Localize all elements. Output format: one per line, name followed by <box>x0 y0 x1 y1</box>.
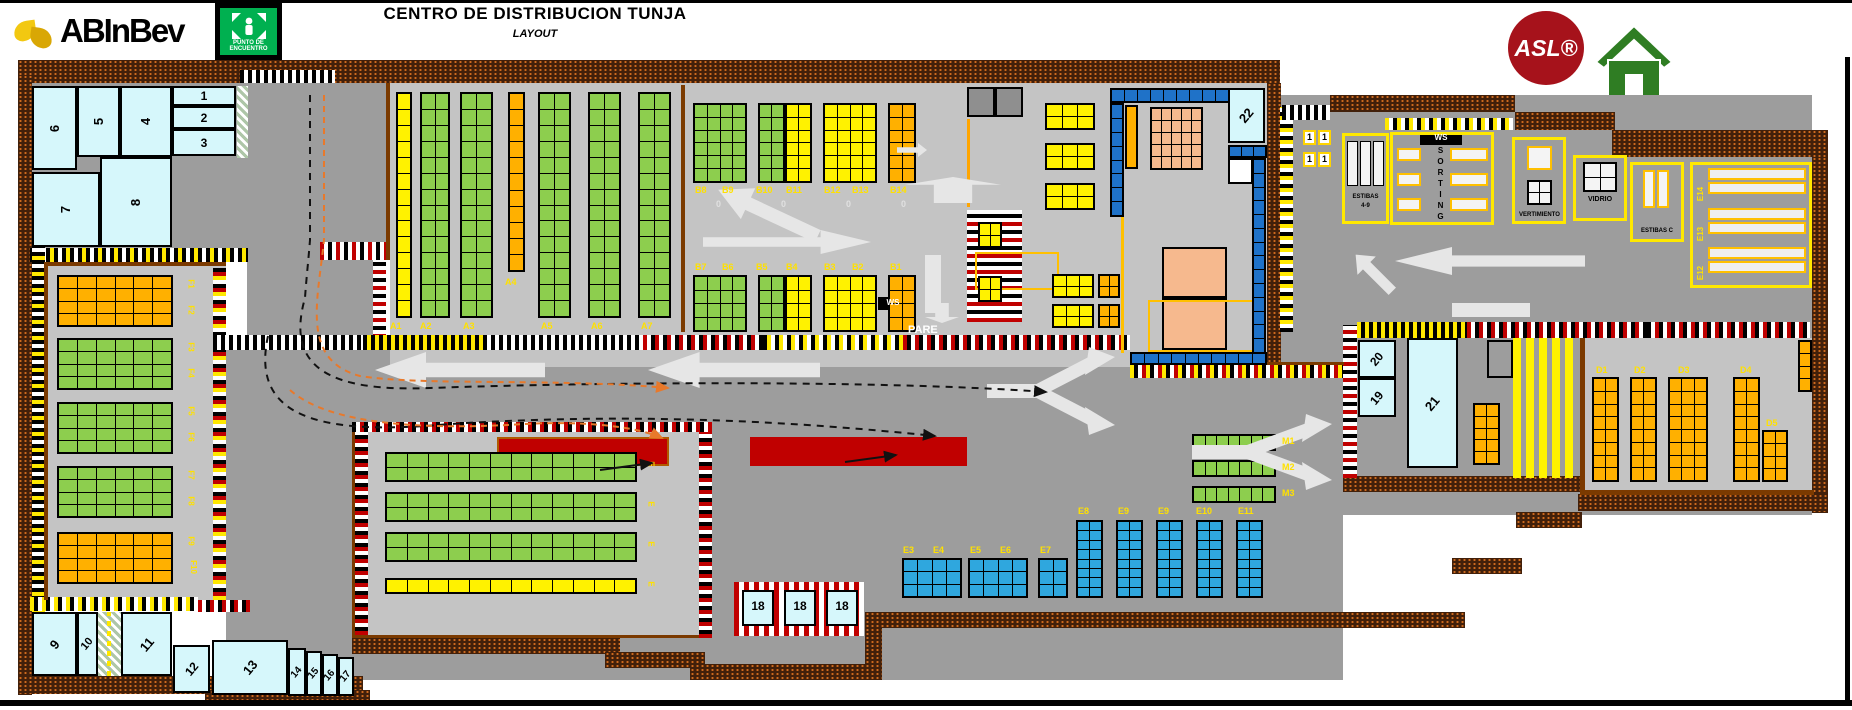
label-1: 1 <box>1318 133 1331 142</box>
conveyor-left-col <box>1110 103 1124 217</box>
label-0: 0 <box>901 200 906 209</box>
picking-strip-4 <box>385 578 637 594</box>
label-E12: E12 <box>1697 266 1705 280</box>
label-F9: F9 <box>187 536 195 545</box>
fzone-top-wall <box>44 262 226 266</box>
room-9: 9 <box>32 612 77 676</box>
rack-A2 <box>420 92 450 318</box>
orange-outline-1 <box>1148 300 1254 352</box>
conveyor-right-col <box>1252 158 1266 354</box>
sorting-slot-r3 <box>1450 198 1488 211</box>
room-3: 3 <box>172 129 236 156</box>
label-E7: E7 <box>1040 546 1051 555</box>
yellow-bar-2 <box>1526 338 1534 478</box>
label-B8: B8 <box>695 186 707 195</box>
rack-E11 <box>1236 520 1263 598</box>
room-1: 1 <box>172 86 236 106</box>
hatch-border <box>1612 130 1828 157</box>
crosswalk <box>1385 118 1513 130</box>
label-4-9: 4-9 <box>1342 203 1389 209</box>
rack-E9b <box>1156 520 1183 598</box>
bottom-border-line <box>0 700 1852 706</box>
crosswalk <box>1130 365 1343 378</box>
label-F1: F1 <box>187 279 195 288</box>
room-11: 11 <box>121 612 172 676</box>
pallet-in-stack-1 <box>978 222 1002 248</box>
label-E10: E10 <box>1196 507 1212 516</box>
label-1: 1 <box>1303 155 1316 164</box>
yellow-bar-1 <box>1513 338 1521 478</box>
label-E13: E13 <box>1697 227 1705 241</box>
room-21: 21 <box>1407 338 1458 468</box>
safety-checker <box>237 86 248 158</box>
room-16: 16 <box>322 654 338 696</box>
crosswalk <box>1357 322 1467 338</box>
label-A5: A5 <box>541 322 553 331</box>
crosswalk <box>363 335 483 350</box>
label-0: 0 <box>716 200 721 209</box>
label-M3: M3 <box>1282 489 1295 498</box>
crosswalk <box>198 600 250 612</box>
label-D5: D5 <box>1766 419 1778 428</box>
label-B10: B10 <box>756 186 773 195</box>
label-E: E <box>647 461 655 466</box>
rack-A3 <box>460 92 493 318</box>
room-22: 22 <box>1228 88 1265 143</box>
label-E14: E14 <box>1697 187 1705 201</box>
rack-A5 <box>538 92 571 318</box>
room-10: 10 <box>77 612 98 676</box>
label-A7: A7 <box>641 322 653 331</box>
pallet-orange-1 <box>1098 274 1120 298</box>
label-F5: F5 <box>187 406 195 415</box>
crosswalk <box>213 335 363 350</box>
rack-F7-F8 <box>57 466 173 518</box>
rack-A7 <box>638 92 671 318</box>
crosswalk <box>213 268 226 612</box>
label-B14: B14 <box>890 186 907 195</box>
estibasc-slot-2 <box>1657 170 1669 208</box>
rack-F5-F6 <box>57 402 173 454</box>
label-B11: B11 <box>786 186 802 195</box>
yellow-bar-5 <box>1565 338 1573 478</box>
crosswalk <box>352 422 712 432</box>
dock-door-1 <box>967 87 995 117</box>
fzone-left-wall <box>44 262 48 600</box>
label-0: 0 <box>781 200 786 209</box>
e13-slot-2 <box>1708 222 1806 234</box>
label-B13: B13 <box>852 186 869 195</box>
vertimiento-slot <box>1527 146 1552 170</box>
rack-D4 <box>1733 377 1760 482</box>
label-D3: D3 <box>1678 366 1690 375</box>
hatch-border <box>1516 512 1582 528</box>
label-E6: E6 <box>1000 546 1011 555</box>
label-E9: E9 <box>1118 507 1129 516</box>
yellow-guide-line <box>1121 217 1124 353</box>
rack-F3-F4 <box>57 338 173 390</box>
rack-A6 <box>588 92 621 318</box>
hatch-border <box>1267 83 1281 367</box>
crosswalk <box>30 248 248 262</box>
label-E8: E8 <box>1078 507 1089 516</box>
crosswalk <box>240 70 335 83</box>
rack-D1 <box>1592 377 1619 482</box>
rack-B3-B2 <box>823 275 877 332</box>
room-5: 5 <box>77 86 120 157</box>
e12-slot-1 <box>1708 247 1806 259</box>
label-WS: WS <box>878 299 908 307</box>
room-19: 19 <box>1358 378 1396 417</box>
rack-D5 <box>1762 430 1788 482</box>
label-0: 0 <box>846 200 851 209</box>
room-20: 20 <box>1358 340 1396 378</box>
label-F6: F6 <box>187 432 195 441</box>
sorting-slot-r2 <box>1450 173 1488 186</box>
label-E: E <box>647 581 655 586</box>
label-B3: B3 <box>824 263 836 272</box>
label-E11: E11 <box>1238 507 1254 516</box>
estibas49-slot-2 <box>1360 141 1371 186</box>
crosswalk <box>643 335 763 350</box>
hatch-border <box>1515 112 1615 130</box>
label-E: E <box>647 541 655 546</box>
label-B1: B1 <box>890 263 902 272</box>
crosswalk <box>30 597 198 611</box>
crosswalk <box>763 335 903 350</box>
label-E4: E4 <box>933 546 944 555</box>
hatch-border <box>18 60 1280 83</box>
sorting-slot-r1 <box>1450 148 1488 161</box>
crosswalk <box>483 335 643 350</box>
crosswalk <box>355 432 368 635</box>
rack-B4 <box>785 275 812 332</box>
rack-D-side <box>1798 340 1812 392</box>
vertimiento-window <box>1527 180 1552 205</box>
estibas49-slot-3 <box>1373 141 1384 186</box>
crosswalk <box>699 432 712 638</box>
rack-B10 <box>758 103 785 183</box>
label-A6: A6 <box>591 322 603 331</box>
pallet-in-stack-2 <box>978 276 1002 302</box>
crosswalk <box>1467 322 1647 338</box>
conveyor-top-row <box>1110 88 1230 103</box>
pallet-yellow-5 <box>1052 304 1094 328</box>
rack-F9-F10 <box>57 532 173 584</box>
crosswalk <box>1282 105 1330 120</box>
vidrio-window <box>1583 162 1617 192</box>
rack-E5-E6 <box>968 558 1028 598</box>
rack-orange-21 <box>1473 403 1500 465</box>
room-12: 12 <box>173 645 210 693</box>
road-top <box>247 83 386 335</box>
label-E9: E9 <box>1158 507 1169 516</box>
hall-divider-wall <box>681 85 685 332</box>
room-6: 6 <box>32 86 77 170</box>
rack-E3-E4 <box>902 558 962 598</box>
e14-slot-1 <box>1708 168 1806 180</box>
hatch-border <box>1343 476 1583 492</box>
label-B7: B7 <box>695 263 707 272</box>
label-18: 18 <box>742 600 774 612</box>
label-1: 1 <box>1318 155 1331 164</box>
label-B6: B6 <box>722 263 734 272</box>
label-E: E <box>647 501 655 506</box>
hall-left-wall <box>386 83 390 260</box>
label-F3: F3 <box>187 342 195 351</box>
rack-E9a <box>1116 520 1143 598</box>
pallet-orange-2 <box>1098 304 1120 328</box>
sorting-salmon-grid <box>1150 107 1203 170</box>
label-18: 18 <box>826 600 858 612</box>
rack-D2 <box>1630 377 1657 482</box>
rack-B5 <box>758 275 785 332</box>
rack-F1-F2 <box>57 275 173 327</box>
lane-divider <box>107 612 111 676</box>
sorting-slot-l2 <box>1397 173 1421 186</box>
room-17: 17 <box>338 657 354 696</box>
pallet-yellow-2 <box>1045 143 1095 170</box>
e13-slot-1 <box>1708 208 1806 220</box>
room-2: 2 <box>172 106 236 129</box>
label-WS: WS <box>1420 134 1462 142</box>
red-block-2 <box>750 437 967 466</box>
label-1: 1 <box>1303 133 1316 142</box>
hatch-border <box>1452 558 1522 574</box>
crosswalk <box>320 242 386 260</box>
hatch-border <box>352 638 620 654</box>
yellow-bar-3 <box>1539 338 1547 478</box>
label-M1: M1 <box>1282 437 1295 446</box>
facility-layout: ABInBev PUNTO DE ENCUENTRO CENTRO DE DIS… <box>0 0 1852 710</box>
label-ESTIBAS C: ESTIBAS C <box>1630 228 1684 234</box>
room-7: 7 <box>32 172 100 247</box>
rack-D3 <box>1668 377 1708 482</box>
rack-B12-B13 <box>823 103 877 183</box>
label-SORTING: SORTING <box>1436 146 1444 223</box>
pallet-yellow-3 <box>1045 183 1095 210</box>
rack-B8-B9 <box>693 103 747 183</box>
hatch-border <box>690 664 882 680</box>
label-A3: A3 <box>463 322 475 331</box>
label-VERTIMIENTO: VERTIMIENTO <box>1513 212 1566 218</box>
flow-arrow-branch <box>985 345 1115 437</box>
label-A1: A1 <box>390 322 402 331</box>
picking-strip-3 <box>385 532 637 562</box>
label-PARE: PARE <box>908 325 938 336</box>
crosswalk <box>1647 322 1810 338</box>
room-13: 13 <box>212 640 288 695</box>
crosswalk <box>1343 325 1357 478</box>
e12-slot-2 <box>1708 261 1806 273</box>
label-F8: F8 <box>187 496 195 505</box>
label-D1: D1 <box>1596 366 1608 375</box>
estibasc-slot-1 <box>1643 170 1655 208</box>
label-F10: F10 <box>189 560 197 574</box>
rack-E8 <box>1076 520 1103 598</box>
white-cell <box>1228 158 1253 184</box>
sorting-slot-l1 <box>1397 148 1421 161</box>
room-15: 15 <box>306 651 322 696</box>
right-border-line <box>1845 57 1850 706</box>
sorting-slot-l3 <box>1397 198 1421 211</box>
room-4: 4 <box>120 86 172 157</box>
yellow-bar-4 <box>1552 338 1560 478</box>
label-18: 18 <box>784 600 816 612</box>
crosswalk <box>373 260 386 338</box>
dock-door-2 <box>995 87 1023 117</box>
room-14: 14 <box>288 648 306 696</box>
hatch-border <box>1330 95 1515 112</box>
salmon-block-1 <box>1162 247 1227 298</box>
label-B2: B2 <box>852 263 864 272</box>
picking-strip-1 <box>385 452 637 482</box>
label-M2: M2 <box>1282 463 1295 472</box>
pallet-yellow-1 <box>1045 103 1095 130</box>
label-E5: E5 <box>970 546 981 555</box>
gray-block <box>1487 340 1513 378</box>
picking-strip-2 <box>385 492 637 522</box>
estibas49-slot-1 <box>1347 141 1358 186</box>
rack-B14 <box>888 103 916 183</box>
rack-B7-B6 <box>693 275 747 332</box>
label-A4: A4 <box>505 278 517 287</box>
rack-A4 <box>508 92 525 272</box>
plan-canvas: 123456789101112131415161720192122A1A2A3A… <box>0 0 1852 710</box>
label-ESTIBAS: ESTIBAS <box>1342 194 1389 200</box>
label-D2: D2 <box>1634 366 1646 375</box>
label-F2: F2 <box>187 305 195 314</box>
white-bar-2 <box>1452 303 1530 317</box>
label-F7: F7 <box>187 470 195 479</box>
e14-slot-2 <box>1708 182 1806 194</box>
dzone-left-wall <box>1580 338 1585 494</box>
orange-bar <box>1125 105 1138 169</box>
rack-B11 <box>785 103 812 183</box>
label-B4: B4 <box>786 263 798 272</box>
rack-E7 <box>1038 558 1068 598</box>
hatch-border <box>1578 494 1828 511</box>
label-B5: B5 <box>756 263 768 272</box>
flow-arrow-branch <box>1190 412 1332 492</box>
pallet-yellow-4 <box>1052 274 1094 298</box>
label-B9: B9 <box>722 186 734 195</box>
label-A2: A2 <box>420 322 432 331</box>
crosswalk <box>1280 107 1293 332</box>
label-D4: D4 <box>1740 366 1752 375</box>
conveyor-bottom-row <box>1130 352 1267 365</box>
hatch-border <box>880 612 1465 628</box>
label-B12: B12 <box>824 186 841 195</box>
label-F4: F4 <box>187 368 195 377</box>
hatch-border <box>1812 157 1828 513</box>
rack-E10 <box>1196 520 1223 598</box>
label-E3: E3 <box>903 546 914 555</box>
top-border-line <box>0 0 1852 3</box>
room-8: 8 <box>100 157 172 247</box>
label-VIDRIO: VIDRIO <box>1576 196 1624 203</box>
conveyor-22-row <box>1228 145 1267 158</box>
rack-A1 <box>396 92 412 318</box>
dzone-bottom-wall <box>1580 490 1814 495</box>
